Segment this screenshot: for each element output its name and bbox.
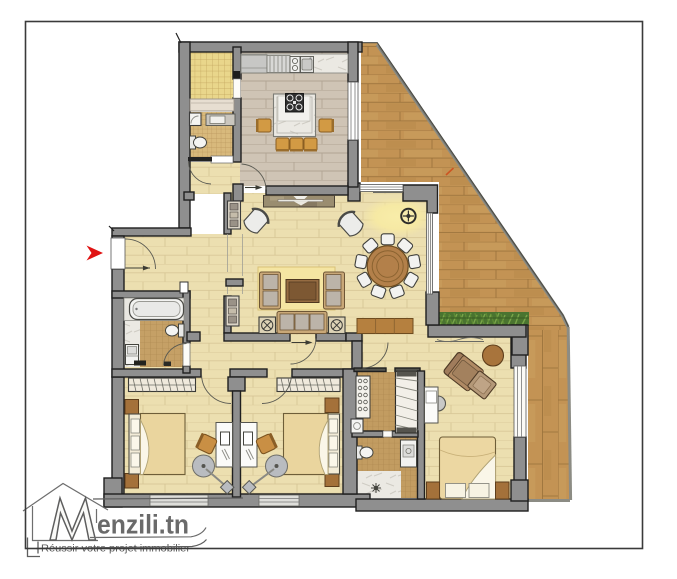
svg-text:enzili.tn: enzili.tn [97,510,189,540]
